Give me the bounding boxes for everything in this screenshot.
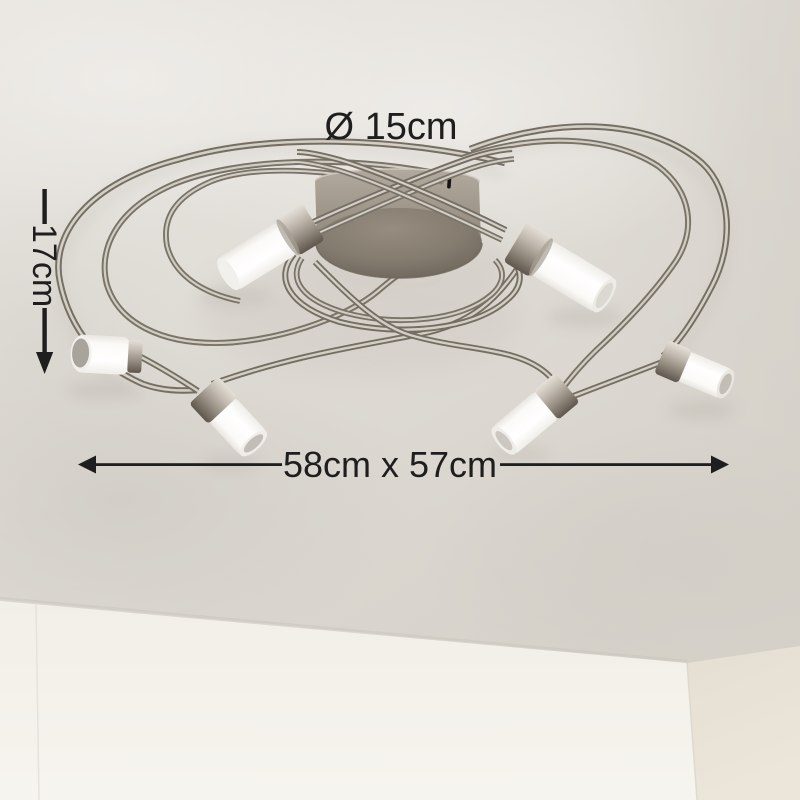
svg-text:58cm x 57cm: 58cm x 57cm — [283, 444, 497, 485]
svg-text:Ø 15cm: Ø 15cm — [324, 106, 457, 148]
svg-text:17cm: 17cm — [25, 224, 63, 307]
